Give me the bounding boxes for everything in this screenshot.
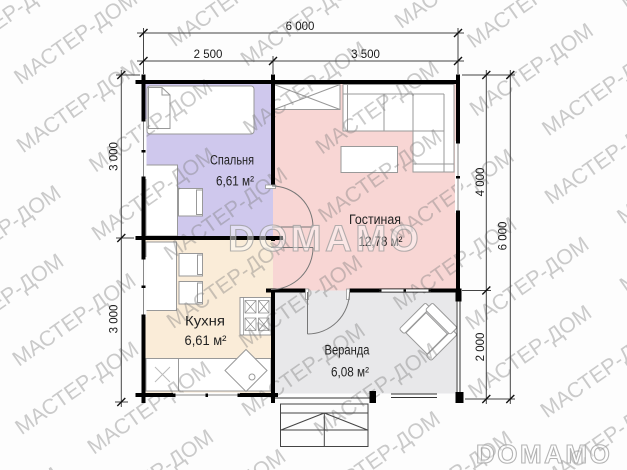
svg-text:4 000: 4 000 [475, 168, 487, 197]
svg-text:6,61 м²: 6,61 м² [216, 174, 254, 189]
svg-text:Кухня: Кухня [185, 314, 225, 329]
svg-text:3 000: 3 000 [109, 305, 121, 334]
svg-text:2 500: 2 500 [194, 49, 223, 61]
svg-text:Веранда: Веранда [325, 343, 370, 358]
svg-text:2 000: 2 000 [475, 333, 487, 362]
svg-text:6,08 м²: 6,08 м² [331, 365, 369, 380]
svg-text:6 000: 6 000 [498, 222, 510, 251]
svg-text:6 000: 6 000 [286, 21, 315, 33]
svg-text:Спальня: Спальня [210, 153, 254, 168]
svg-text:6,61 м²: 6,61 м² [185, 333, 227, 348]
svg-text:3 500: 3 500 [351, 49, 380, 61]
svg-text:3 000: 3 000 [109, 142, 121, 171]
